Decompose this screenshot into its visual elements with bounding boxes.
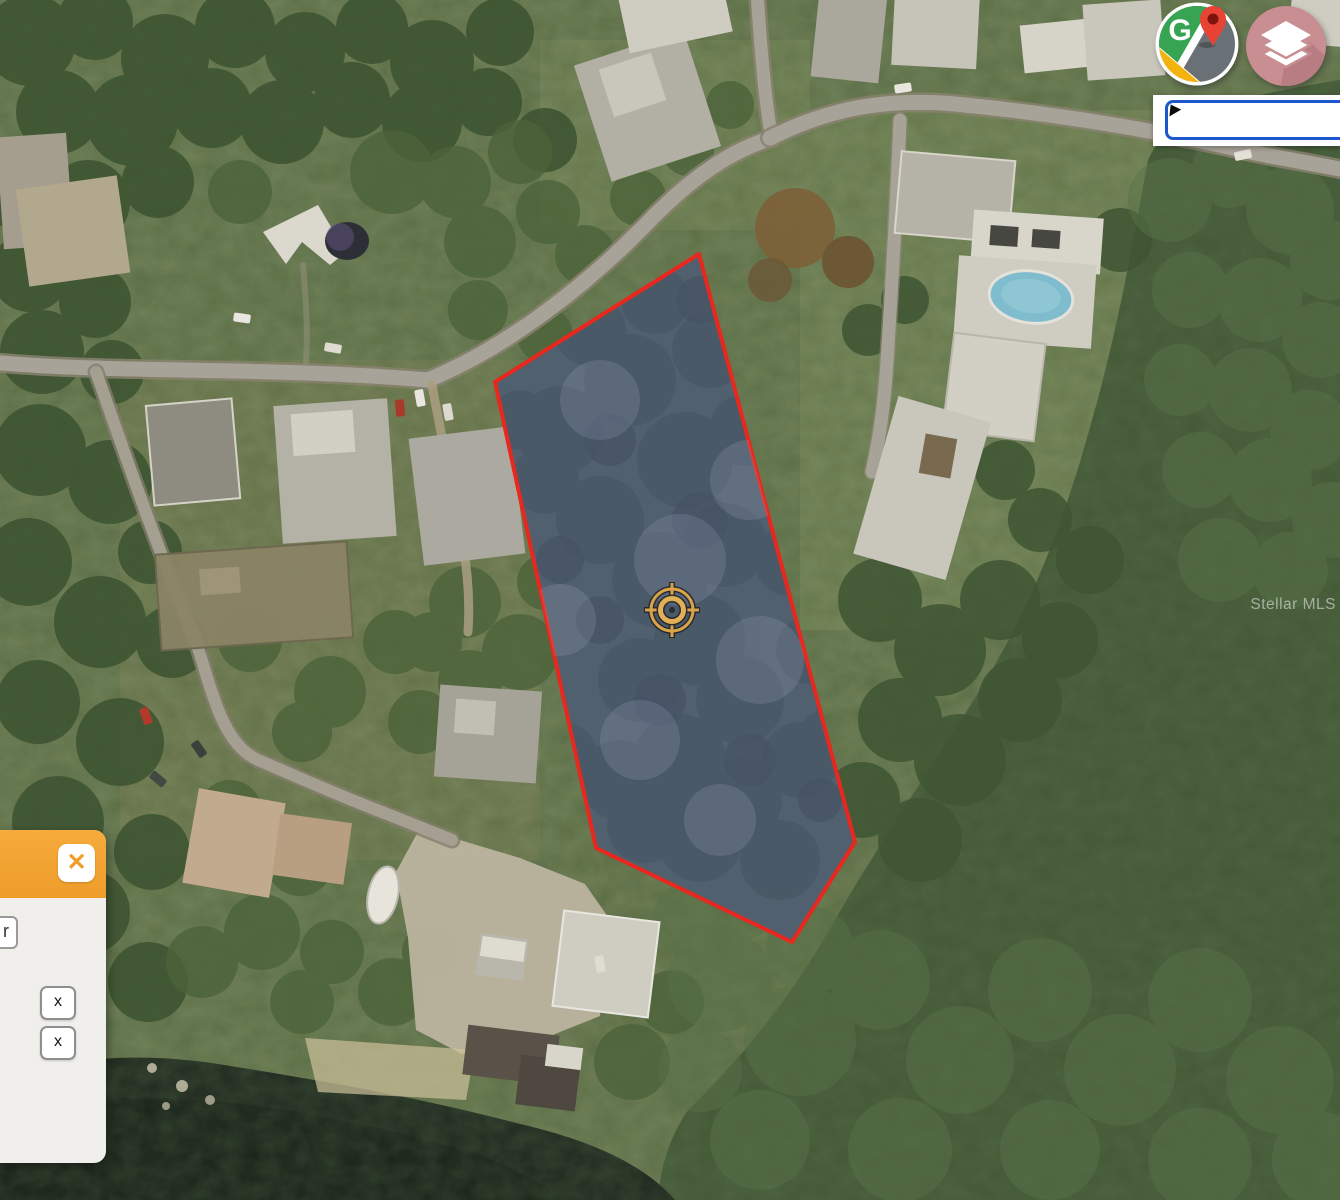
remove-row-button-2[interactable]: x (40, 1026, 76, 1060)
map-app-window: Stellar MLS G (0, 0, 1340, 1200)
panel-close-button[interactable]: ✕ (58, 844, 95, 882)
remove-row-button-1[interactable]: x (40, 986, 76, 1020)
google-g-letter: G (1168, 14, 1191, 47)
cursor-icon (1169, 104, 1181, 117)
search-bar (1153, 95, 1340, 146)
clipped-action-button[interactable]: r (0, 916, 18, 949)
panel-header: ✕ (0, 830, 106, 898)
satellite-map[interactable]: Stellar MLS (0, 0, 1340, 1200)
google-maps-button[interactable]: G (1154, 1, 1240, 87)
watermark: Stellar MLS (1250, 596, 1336, 613)
tools-panel: ✕ r x x (0, 830, 106, 1163)
map-search-input[interactable] (1165, 100, 1340, 140)
layers-button[interactable] (1244, 4, 1328, 88)
